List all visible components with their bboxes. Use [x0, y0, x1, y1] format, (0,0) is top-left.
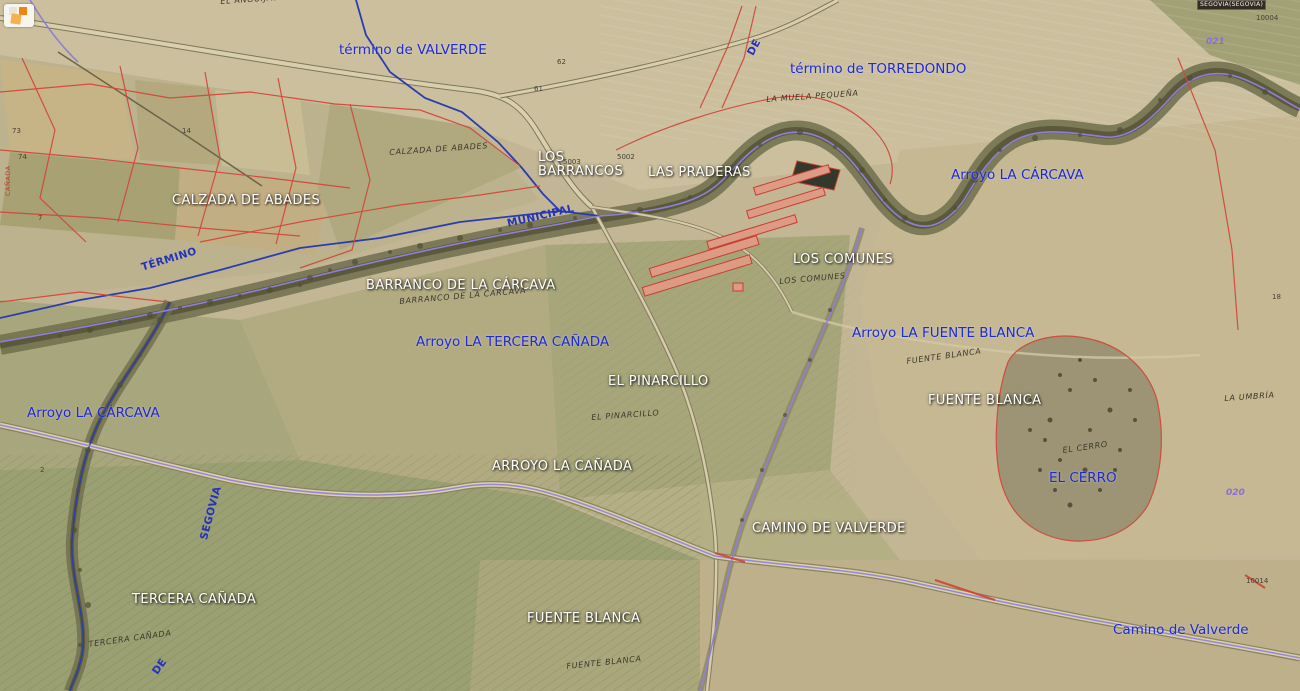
- map-label-los-comunes: LOS COMUNES: [793, 252, 893, 267]
- map-viewport[interactable]: término de VALVERDEtérmino de TORREDONDO…: [0, 0, 1300, 691]
- map-label-fuente-blanca-s: FUENTE BLANCA: [527, 611, 640, 626]
- map-label-el-cerro-cad: EL CERRO: [1062, 440, 1109, 455]
- map-label-fuente-blanca-e: FUENTE BLANCA: [928, 393, 1041, 408]
- map-label-barranco-cad: BARRANCO DE LA CARCAVA: [399, 286, 527, 306]
- map-label-parcel-18: 18: [1272, 293, 1281, 301]
- map-label-tercera-canada-cad: TERCERA CAÑADA: [88, 628, 172, 649]
- map-label-parcel-10004: 10004: [1256, 14, 1278, 22]
- map-label-canada-red: CAÑADA: [4, 165, 12, 196]
- light-orange-square-icon: [10, 13, 21, 24]
- map-label-parcel-7: 7: [38, 214, 42, 222]
- map-label-fuente-blanca-cad-s: FUENTE BLANCA: [566, 654, 642, 671]
- map-label-arroyo-la-carcava-ne: Arroyo LA CÁRCAVA: [951, 167, 1084, 183]
- map-label-las-praderas: LAS PRADERAS: [648, 165, 751, 180]
- map-label-camino-de-valverde-blue: Camino de Valverde: [1113, 622, 1249, 638]
- map-label-parcel-5002: 5002: [617, 153, 635, 161]
- map-label-calzada-de-abades-cad: CALZADA DE ABADES: [389, 141, 488, 157]
- map-label-parcel-5003: 5003: [563, 158, 581, 166]
- region-indicator: SEGOVIA(SEGOVIA): [1197, 0, 1266, 10]
- map-label-termino-boundary: TÉRMINO: [140, 245, 198, 273]
- map-label-arroyo-la-carcava-w: Arroyo LA CÁRCAVA: [27, 405, 160, 421]
- map-label-los-comunes-cad: LOS COMUNES: [779, 271, 846, 286]
- map-label-parcel-74: 74: [18, 153, 27, 161]
- map-label-arroyo-la-fuente-blanca: Arroyo LA FUENTE BLANCA: [852, 325, 1034, 341]
- map-label-arroyo-la-tercera-canada: Arroyo LA TERCERA CAÑADA: [416, 334, 609, 350]
- map-label-municipal-boundary: MUNICIPAL: [506, 203, 575, 230]
- map-label-de-road-north: DE: [745, 37, 763, 57]
- map-label-parcel-73: 73: [12, 127, 21, 135]
- map-label-parcel-61: 61: [534, 85, 543, 93]
- corner-logo-button[interactable]: [4, 4, 34, 27]
- map-label-parcel-62: 62: [557, 58, 566, 66]
- map-label-fuente-blanca-cad-n: FUENTE BLANCA: [906, 346, 982, 365]
- map-label-tercera-canada: TERCERA CAÑADA: [132, 592, 256, 607]
- map-label-los-barrancos: LOS BARRANCOS: [538, 151, 623, 179]
- map-label-la-umbria-cad: LA UMBRÍA: [1224, 390, 1275, 402]
- region-indicator-text: SEGOVIA(SEGOVIA): [1200, 1, 1263, 8]
- map-label-la-muela-pequena-cad: LA MUELA PEQUEÑA: [766, 89, 859, 104]
- map-label-el-pinarcillo-cad: EL PINARCILLO: [591, 408, 660, 422]
- map-label-parcel-10014: 10014: [1246, 577, 1268, 585]
- map-label-segovia-road: SEGOVIA: [198, 485, 224, 541]
- map-label-arroyo-la-canada: ARROYO LA CAÑADA: [492, 459, 632, 474]
- map-labels-layer: término de VALVERDEtérmino de TORREDONDO…: [0, 0, 1300, 691]
- map-label-el-cerro: EL CERRO: [1049, 470, 1117, 486]
- map-label-de-road-south: DE: [150, 656, 169, 677]
- map-label-calzada-de-abades: CALZADA DE ABADES: [172, 193, 320, 208]
- map-label-el-anguijal-cad: EL ANGUIJAL: [220, 0, 278, 6]
- map-label-parcel-020: 020: [1226, 488, 1245, 498]
- map-label-el-pinarcillo: EL PINARCILLO: [608, 374, 709, 389]
- map-label-camino-de-valverde: CAMINO DE VALVERDE: [752, 521, 906, 536]
- map-label-barranco-de-la-carcava: BARRANCO DE LA CÁRCAVA: [366, 278, 556, 293]
- map-label-parcel-021: 021: [1206, 37, 1225, 47]
- map-label-termino-de-valverde: término de VALVERDE: [339, 42, 487, 58]
- map-label-termino-de-torredondo: término de TORREDONDO: [790, 61, 966, 77]
- map-label-parcel-14: 14: [182, 127, 191, 135]
- map-label-parcel-2: 2: [40, 466, 44, 474]
